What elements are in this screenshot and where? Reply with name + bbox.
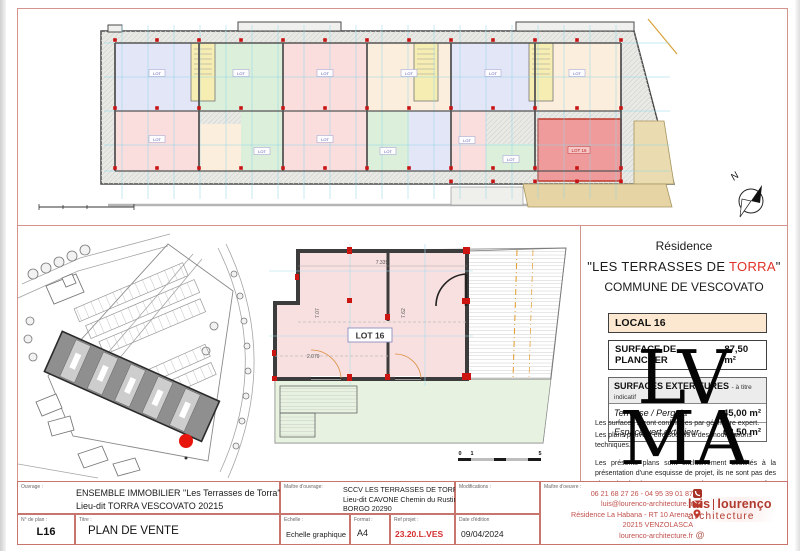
titre-cell: Titre : PLAN DE VENTE — [75, 514, 280, 545]
scan-edge — [0, 0, 6, 551]
north-compass-icon: N — [729, 170, 763, 217]
date-value: 09/04/2024 — [461, 529, 504, 539]
format-value: A4 — [357, 528, 368, 538]
lot-16-plan-drawing: LOT 16 7.339 2.079 7.07 7.62 0 1 5 — [255, 226, 579, 481]
svg-text:2.079: 2.079 — [307, 354, 320, 360]
svg-text:LOT 16: LOT 16 — [356, 331, 385, 341]
surface-plancher-row: SURFACE DE PLANCHER 87,50 m² — [608, 340, 767, 370]
svg-text:LOT: LOT — [384, 149, 392, 154]
address-line2: 20215 VENZOLASCA — [552, 520, 693, 529]
ref-projet-value: 23.20.L.VES — [395, 529, 443, 539]
svg-text:LOT 16: LOT 16 — [572, 148, 587, 153]
info-panel: Résidence "LES TERRASSES DE TORRA" COMMU… — [580, 225, 788, 482]
svg-text:7.62: 7.62 — [401, 308, 407, 318]
residence-name: "LES TERRASSES DE TORRA" — [581, 259, 787, 274]
lot-interior — [275, 251, 467, 379]
site-dot — [185, 457, 188, 460]
scan-edge — [795, 0, 800, 551]
at-icon: @ — [693, 531, 707, 540]
svg-text:LOT: LOT — [153, 137, 161, 142]
sheet-title: PLAN DE VENTE — [88, 525, 179, 537]
svg-text:LOT: LOT — [489, 71, 497, 76]
architect-contact: 06 21 68 27 26 - 04 95 39 01 87 luis@lou… — [547, 488, 707, 541]
svg-text:0: 0 — [458, 451, 461, 457]
svg-text:LOT: LOT — [258, 149, 266, 154]
plan-number: L16 — [18, 526, 74, 538]
site-plan-drawing — [18, 226, 255, 481]
ouvrage-cell: Ouvrage : ENSEMBLE IMMOBILIER "Les Terra… — [17, 481, 280, 514]
date-cell: Date d'édition 09/04/2024 — [455, 514, 540, 545]
pergola-terrace — [467, 248, 566, 379]
residence-title: Résidence "LES TERRASSES DE TORRA" COMMU… — [581, 239, 787, 294]
site-location-marker-icon — [179, 434, 193, 448]
svg-text:LOT: LOT — [321, 71, 329, 76]
site-plan-panel — [17, 225, 256, 482]
echelle-value: Echelle graphique — [286, 530, 346, 539]
svg-text:5: 5 — [538, 451, 541, 457]
detail-scale-bar: 0 1 5 — [458, 451, 542, 461]
svg-text:7.07: 7.07 — [315, 308, 321, 318]
north-label: N — [729, 170, 742, 184]
svg-text:LOT: LOT — [507, 157, 515, 162]
ref-projet-cell: Ref projet : 23.20.L.VES — [390, 514, 455, 545]
lot-16-label: LOT 16 — [348, 328, 392, 342]
floor-plan-overview-drawing: LOTLOTLOTLOTLOTLOTLOTLOTLOTLOTLOTLOTLOT … — [18, 9, 787, 225]
surface-plancher-value: 87,50 m² — [724, 344, 760, 366]
architect-logo: luis lourenço architecture — [688, 497, 782, 522]
logo-divider — [713, 499, 714, 510]
svg-text:LOT: LOT — [405, 71, 413, 76]
address-line1: Résidence La Habana - RT 10 Arena - — [552, 510, 693, 519]
svg-text:LOT: LOT — [573, 71, 581, 76]
ext-header: SURFACES EXTERIEURES — [614, 381, 729, 391]
ouvrage-line2: Lieu-dit TORRA VESCOVATO 20215 — [76, 500, 281, 513]
modifications-cell: Modifications : — [455, 481, 540, 514]
maitre-oeuvre-cell: Maître d'oeuvre : 06 21 68 27 26 - 04 95… — [540, 481, 788, 545]
commune: COMMUNE DE VESCOVATO — [581, 280, 787, 294]
svg-text:LOT: LOT — [321, 137, 329, 142]
phone-number: 06 21 68 27 26 - 04 95 39 01 87 — [552, 489, 693, 498]
residence-name-highlight: TORRA — [729, 259, 776, 274]
plan-de-vente-sheet: LOTLOTLOTLOTLOTLOTLOTLOTLOTLOTLOTLOTLOT … — [0, 0, 800, 551]
svg-text:7.339: 7.339 — [376, 260, 389, 266]
ouvrage-line1: ENSEMBLE IMMOBILIER "Les Terrasses de To… — [76, 487, 281, 500]
floor-plan-overview-panel: LOTLOTLOTLOTLOTLOTLOTLOTLOTLOTLOTLOTLOT … — [17, 8, 788, 226]
email: luis@lourenco-architecture.fr — [552, 499, 693, 508]
echelle-cell: Echelle : Echelle graphique — [280, 514, 350, 545]
maitre-ouvrage-cell: Maître d'ouvrage: SCCV LES TERRASSES DE … — [280, 481, 455, 514]
svg-text:LOT: LOT — [463, 138, 471, 143]
surface-plancher-label: SURFACE DE PLANCHER — [615, 344, 724, 366]
plan-number-cell: N° de plan : L16 — [17, 514, 75, 545]
svg-text:LOT: LOT — [153, 71, 161, 76]
svg-text:LOT: LOT — [237, 71, 245, 76]
lot-detail-panel: LOT 16 7.339 2.079 7.07 7.62 0 1 5 — [255, 225, 581, 482]
svg-text:1: 1 — [470, 451, 473, 457]
residence-word: Résidence — [581, 239, 787, 253]
title-block: Ouvrage : ENSEMBLE IMMOBILIER "Les Terra… — [17, 481, 788, 545]
format-cell: Format : A4 — [350, 514, 390, 545]
local-header: LOCAL 16 — [608, 313, 767, 333]
website: lourenco-architecture.fr — [552, 531, 693, 540]
